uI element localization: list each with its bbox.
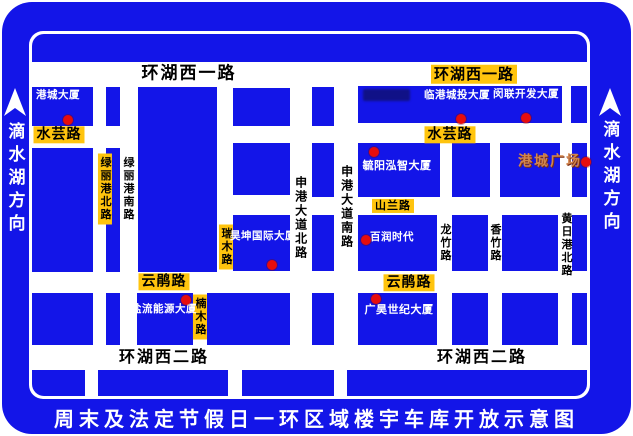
road-label: 申港大道南路 (339, 165, 352, 249)
city-block (106, 293, 120, 345)
building-label: 临港城投大厦 (424, 90, 490, 102)
road-label: 龙竹路 (439, 224, 451, 263)
city-block (502, 215, 558, 271)
building-label: 闵联开发大厦 (493, 89, 559, 101)
city-block (572, 215, 587, 271)
up-arrow-icon-right (599, 88, 621, 120)
city-block (502, 293, 558, 345)
road-label: 环湖西二路 (119, 348, 209, 366)
city-block (452, 215, 488, 271)
map-schematic: 滴水湖方向 滴水湖方向 周末及法定节假日一环区域楼宇车库开放示意图 环湖西一路环… (0, 0, 633, 436)
plaza-label: 港城广场 (518, 154, 582, 169)
city-block (207, 293, 290, 345)
direction-label-right: 滴水湖方向 (598, 120, 623, 235)
garage-location-dot (369, 147, 379, 157)
building-label: 昊坤国际大厦 (230, 231, 296, 243)
city-block (452, 293, 488, 345)
city-block (32, 148, 93, 272)
road-label: 黄日港北路 (560, 213, 572, 278)
garage-location-dot (371, 294, 381, 304)
road-label: 山兰路 (372, 199, 414, 213)
road-label: 绿丽港北路 (98, 154, 112, 225)
garage-location-dot (267, 260, 277, 270)
building-label: 盐流能源大厦 (131, 304, 197, 316)
road-label: 香竹路 (489, 224, 501, 263)
city-block (312, 143, 334, 197)
city-block (571, 86, 587, 123)
road-label: 水芸路 (425, 126, 476, 143)
city-block (347, 370, 587, 396)
road-label: 绿丽港南路 (122, 157, 134, 222)
schematic-title: 周末及法定节假日一环区域楼宇车库开放示意图 (0, 401, 633, 434)
road-label: 环湖西一路 (142, 65, 237, 84)
building-label: 百润时代 (370, 232, 414, 244)
garage-location-dot (581, 157, 591, 167)
road-label: 环湖西一路 (431, 65, 517, 84)
garage-location-dot (521, 113, 531, 123)
direction-label-left: 滴水湖方向 (3, 122, 28, 237)
city-block (233, 215, 290, 271)
city-block (452, 143, 490, 197)
city-block (32, 370, 85, 396)
road-label: 楠木路 (193, 295, 207, 340)
city-block (358, 293, 437, 345)
map-area: 环湖西一路环湖西二路环湖西二路环湖西一路水芸路水芸路山兰路云鹃路云鹃路绿丽港北路… (29, 31, 590, 399)
garage-location-dot (456, 114, 466, 124)
city-block (312, 293, 334, 345)
garage-location-dot (181, 295, 191, 305)
city-block (32, 293, 93, 345)
city-block (106, 87, 120, 126)
up-arrow-icon-left (4, 88, 26, 120)
city-block (233, 143, 290, 195)
city-block (138, 87, 217, 272)
city-block (233, 88, 290, 126)
illegible-label (363, 89, 410, 101)
road-label: 环湖西二路 (437, 348, 527, 366)
garage-location-dot (63, 115, 73, 125)
city-block (32, 34, 587, 62)
building-label: 广昊世纪大厦 (365, 304, 434, 316)
city-block (572, 143, 587, 197)
city-block (312, 215, 334, 271)
city-block (312, 87, 334, 126)
city-block (500, 143, 560, 197)
city-block (572, 293, 587, 345)
building-label: 港城大厦 (36, 90, 80, 102)
road-label: 云鹃路 (384, 274, 435, 291)
city-block (242, 370, 334, 396)
city-block (98, 370, 228, 396)
building-label: 毓阳泓智大厦 (363, 160, 432, 172)
road-label: 云鹃路 (139, 273, 190, 290)
road-label: 水芸路 (34, 126, 85, 143)
garage-location-dot (361, 235, 371, 245)
road-label: 申港大道北路 (293, 176, 306, 260)
